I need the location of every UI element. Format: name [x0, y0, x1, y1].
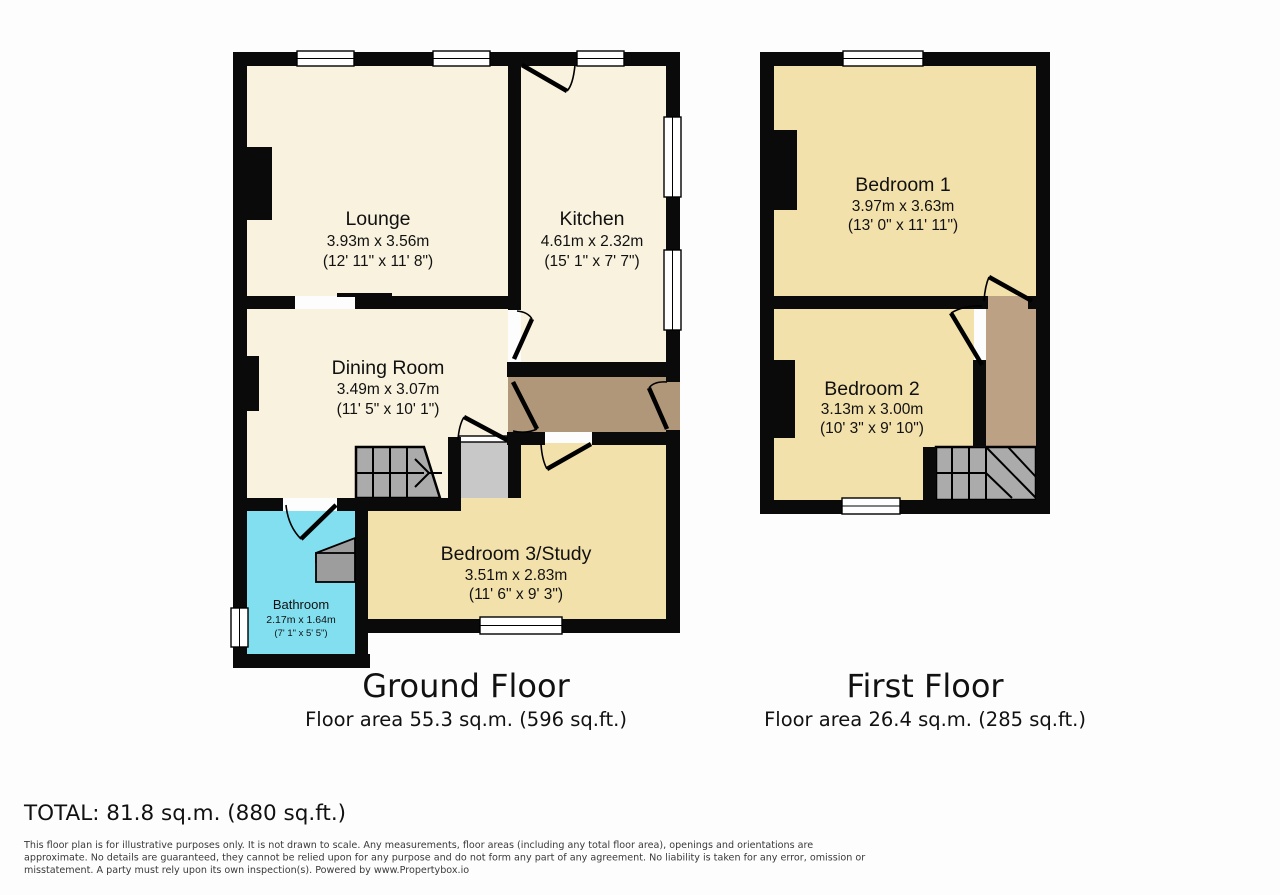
- opening-marker: [337, 293, 392, 297]
- wall-lounge-dining-right: [355, 296, 508, 309]
- lounge-dim-metric: 3.93m x 3.56m: [327, 233, 430, 250]
- bedroom1-chimney-breast: [774, 130, 797, 210]
- wall-bathroom-bottom: [233, 654, 370, 668]
- wall-left: [760, 52, 774, 514]
- wall-right-upper: [666, 52, 680, 382]
- wall-landing-left: [973, 360, 986, 447]
- wall-vestibule-right: [508, 437, 521, 498]
- wall-stairs-left: [923, 447, 936, 500]
- lounge-window-1: [297, 51, 354, 66]
- wall-bathroom-right: [355, 498, 368, 668]
- ground-floor-plan: Lounge 3.93m x 3.56m (12' 11" x 11' 8") …: [231, 51, 681, 668]
- dining-room-dim-metric: 3.49m x 3.07m: [337, 381, 440, 398]
- bathroom-dim-imperial: (7' 1" x 5' 5"): [274, 628, 327, 639]
- vestibule: [458, 436, 508, 498]
- lounge-chimney-breast: [247, 147, 272, 220]
- first-floor-area: Floor area 26.4 sq.m. (285 sq.ft.): [764, 708, 1086, 731]
- landing-floor: [986, 296, 1036, 447]
- ground-floor-area: Floor area 55.3 sq.m. (596 sq.ft.): [305, 708, 627, 731]
- kitchen-right-window-upper: [664, 117, 681, 197]
- first-floor-plan: Bedroom 1 3.97m x 3.63m (13' 0" x 11' 11…: [760, 51, 1050, 514]
- bedroom3-window: [480, 617, 562, 634]
- bedroom1-label: Bedroom 1: [855, 174, 950, 196]
- vestibule-floor: [458, 442, 508, 498]
- wall-hall-top: [507, 362, 680, 377]
- wall-hall-bottom-right: [592, 432, 680, 445]
- bedroom2-dim-metric: 3.13m x 3.00m: [821, 401, 924, 418]
- bedroom3-dim-imperial: (11' 6" x 9' 3"): [469, 586, 563, 603]
- kitchen-dim-metric: 4.61m x 2.32m: [541, 233, 644, 250]
- dining-room-dim-imperial: (11' 5" x 10' 1"): [337, 401, 440, 418]
- captions: Ground Floor Floor area 55.3 sq.m. (596 …: [23, 667, 1086, 876]
- lounge-window-2: [433, 51, 490, 66]
- lounge-label: Lounge: [345, 208, 410, 230]
- bedroom1-dim-metric: 3.97m x 3.63m: [852, 198, 955, 215]
- wall-right-lower: [666, 430, 680, 633]
- dining-chimney-breast: [247, 356, 259, 411]
- wall-lounge-kitchen: [508, 52, 521, 310]
- first-floor-title: First Floor: [846, 667, 1004, 705]
- bedroom2-window: [842, 498, 900, 514]
- bedroom1-window: [843, 51, 923, 66]
- total-area-label: TOTAL: 81.8 sq.m. (880 sq.ft.): [23, 801, 346, 826]
- bathroom-dim-metric: 2.17m x 1.64m: [266, 614, 336, 626]
- ground-floor-room-fills: [247, 66, 680, 654]
- bathroom-window: [231, 608, 248, 647]
- dining-room-label: Dining Room: [332, 357, 445, 379]
- kitchen-dim-imperial: (15' 1" x 7' 7"): [544, 253, 639, 270]
- lounge-dim-imperial: (12' 11" x 11' 8"): [323, 253, 433, 270]
- wall-lounge-dining-left: [233, 296, 295, 309]
- bedroom2-chimney-breast: [774, 360, 795, 438]
- disclaimer-line-1: This floor plan is for illustrative purp…: [23, 840, 813, 851]
- floorplan-canvas: Lounge 3.93m x 3.56m (12' 11" x 11' 8") …: [0, 0, 1280, 895]
- wall-right: [1036, 52, 1050, 514]
- sink-unit: [316, 553, 355, 582]
- disclaimer-line-2: approximate. No details are guaranteed, …: [24, 853, 865, 864]
- ground-floor-title: Ground Floor: [362, 667, 570, 705]
- wall-bathroom-top: [233, 498, 283, 511]
- kitchen-top-window: [577, 51, 624, 66]
- kitchen-label: Kitchen: [559, 208, 624, 230]
- disclaimer-line-3: misstatement. A party must rely upon its…: [24, 865, 469, 876]
- kitchen-right-window-lower: [664, 250, 681, 330]
- bedroom1-dim-imperial: (13' 0" x 11' 11"): [848, 217, 958, 234]
- bedroom2-dim-imperial: (10' 3" x 9' 10"): [820, 420, 924, 437]
- bedroom3-dim-metric: 3.51m x 2.83m: [465, 567, 568, 584]
- first-floor-stairs: [936, 447, 1036, 500]
- wall-vestibule-left: [448, 437, 461, 498]
- bathroom-label: Bathroom: [273, 597, 329, 612]
- bedroom3-label: Bedroom 3/Study: [441, 543, 592, 565]
- wall-left: [233, 52, 247, 668]
- bedroom2-label: Bedroom 2: [824, 378, 919, 400]
- wall-bottom: [760, 500, 1050, 514]
- floorplan-page: Lounge 3.93m x 3.56m (12' 11" x 11' 8") …: [0, 0, 1280, 895]
- wall-bedroom-divider: [774, 296, 988, 309]
